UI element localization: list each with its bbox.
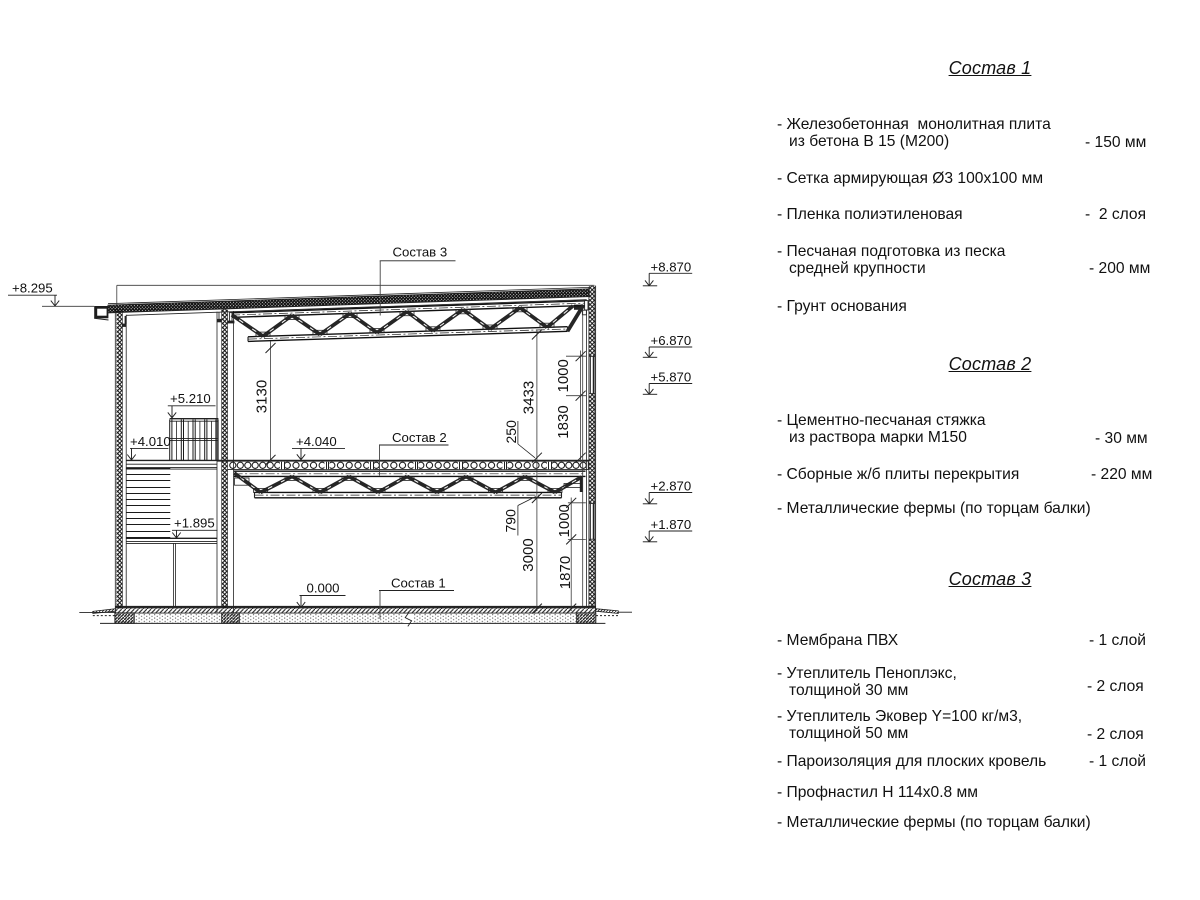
svg-text:250: 250 bbox=[503, 420, 519, 444]
svg-text:3000: 3000 bbox=[520, 538, 537, 571]
svg-text:1000: 1000 bbox=[555, 359, 572, 392]
svg-text:+1.870: +1.870 bbox=[651, 517, 692, 532]
svg-text:+4.010: +4.010 bbox=[130, 434, 171, 449]
svg-text:1830: 1830 bbox=[555, 405, 572, 438]
svg-text:+6.870: +6.870 bbox=[651, 333, 692, 348]
svg-text:0.000: 0.000 bbox=[307, 581, 340, 596]
svg-text:+5.210: +5.210 bbox=[170, 391, 211, 406]
svg-text:Состав 1: Состав 1 bbox=[391, 576, 446, 591]
svg-text:3433: 3433 bbox=[521, 381, 538, 414]
svg-text:+5.870: +5.870 bbox=[651, 370, 692, 385]
svg-text:+2.870: +2.870 bbox=[651, 479, 692, 494]
svg-text:+4.040: +4.040 bbox=[296, 434, 337, 449]
svg-text:Состав 2: Состав 2 bbox=[392, 430, 447, 445]
svg-text:1000: 1000 bbox=[556, 504, 573, 537]
svg-text:Состав 3: Состав 3 bbox=[393, 245, 448, 260]
svg-text:+8.870: +8.870 bbox=[651, 260, 692, 275]
svg-text:+1.895: +1.895 bbox=[174, 516, 215, 531]
svg-text:+8.295: +8.295 bbox=[12, 281, 53, 296]
svg-text:3130: 3130 bbox=[254, 380, 271, 413]
svg-text:1870: 1870 bbox=[557, 556, 574, 589]
svg-text:790: 790 bbox=[502, 509, 518, 533]
